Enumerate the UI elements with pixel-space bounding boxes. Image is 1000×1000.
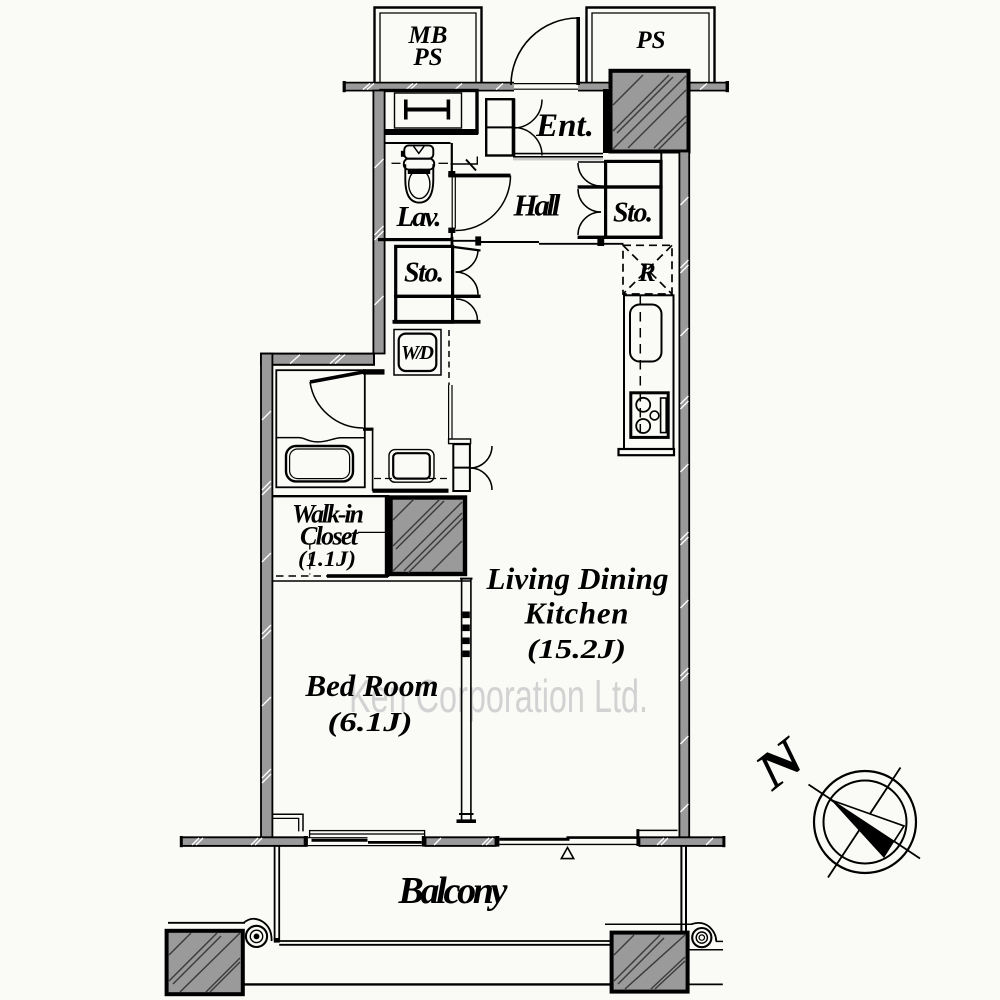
svg-text:Hall: Hall <box>513 188 561 223</box>
svg-text:PS: PS <box>635 27 665 54</box>
svg-text:Lav.: Lav. <box>396 201 442 233</box>
svg-text:W/D: W/D <box>401 342 434 364</box>
svg-text:(6.1J): (6.1J) <box>328 707 413 737</box>
svg-text:Sto.: Sto. <box>404 258 444 289</box>
svg-text:R: R <box>637 258 655 287</box>
svg-text:(15.2J): (15.2J) <box>527 634 626 664</box>
svg-text:Bed Room: Bed Room <box>305 668 439 703</box>
svg-text:Sto.: Sto. <box>613 198 653 229</box>
svg-text:Living Dining: Living Dining <box>486 561 669 596</box>
svg-text:Kitchen: Kitchen <box>524 596 629 631</box>
svg-text:(1.1J): (1.1J) <box>298 546 356 571</box>
svg-text:Ent.: Ent. <box>535 108 594 144</box>
svg-text:PS: PS <box>412 44 442 71</box>
svg-text:Balcony: Balcony <box>398 870 508 912</box>
